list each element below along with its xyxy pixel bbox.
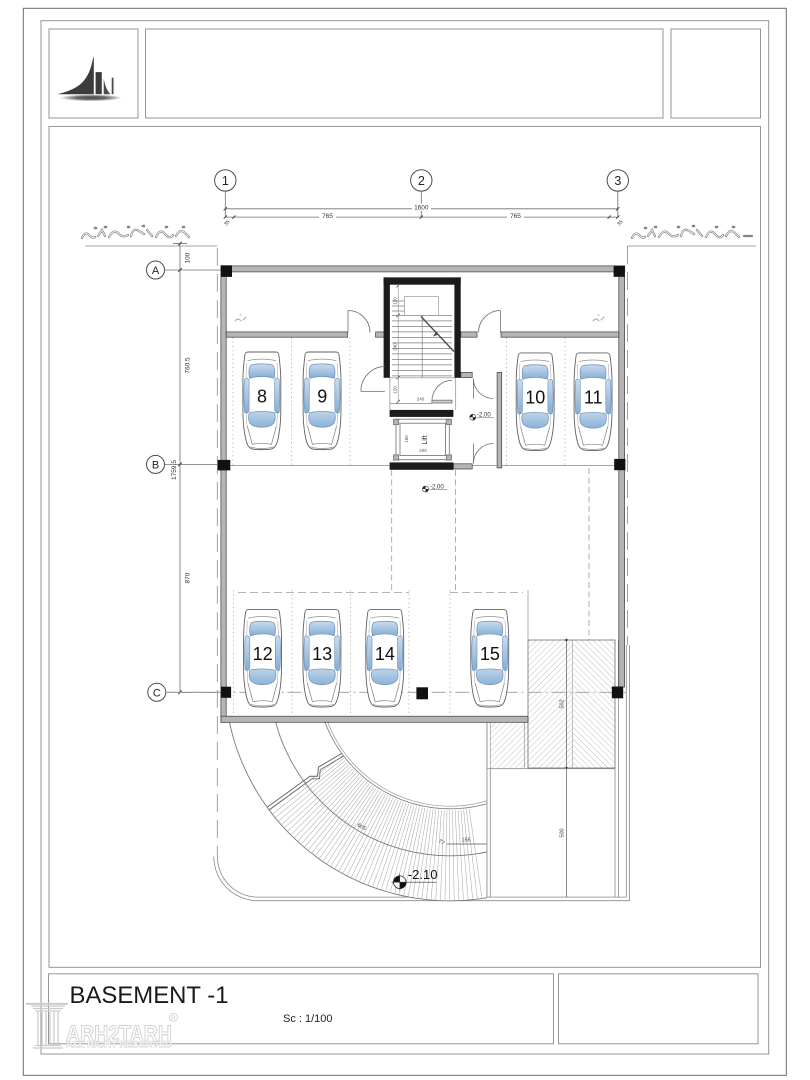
svg-text:15: 15 (480, 644, 500, 664)
svg-text:240: 240 (417, 397, 425, 402)
svg-text:BASEMENT -1: BASEMENT -1 (70, 982, 229, 1009)
svg-text:14: 14 (375, 644, 395, 664)
svg-text:13: 13 (312, 644, 332, 664)
svg-text:2: 2 (418, 174, 425, 188)
svg-text:1600: 1600 (414, 205, 429, 212)
svg-text:200: 200 (419, 448, 427, 453)
svg-text:11: 11 (584, 388, 603, 408)
svg-text:240: 240 (393, 343, 398, 351)
svg-text:9: 9 (317, 387, 327, 407)
svg-text:3: 3 (614, 174, 621, 188)
svg-text:502: 502 (560, 699, 566, 708)
svg-text:1: 1 (222, 174, 229, 188)
svg-text:12: 12 (253, 644, 273, 664)
svg-text:R: R (171, 1015, 176, 1022)
svg-text:Lift: Lift (422, 435, 429, 444)
svg-text:120: 120 (393, 386, 398, 394)
svg-text:156: 156 (461, 838, 470, 844)
svg-text:1759.5: 1759.5 (171, 460, 178, 480)
svg-text:120: 120 (393, 297, 398, 305)
svg-text:8: 8 (257, 387, 267, 407)
svg-text:B: B (152, 459, 159, 471)
svg-text:760.5: 760.5 (185, 357, 192, 374)
svg-text:Sc : 1/100: Sc : 1/100 (283, 1013, 333, 1025)
svg-text:C: C (153, 687, 161, 699)
svg-text:765: 765 (322, 213, 333, 220)
svg-text:100: 100 (185, 252, 192, 263)
svg-text:160: 160 (404, 435, 409, 443)
svg-text:10: 10 (525, 388, 545, 408)
svg-text:ALL RIGHT RESERVED: ALL RIGHT RESERVED (66, 1040, 173, 1050)
svg-text:500: 500 (560, 828, 566, 837)
svg-text:-2.10: -2.10 (408, 867, 438, 882)
svg-text:A: A (152, 265, 160, 277)
svg-text:765: 765 (510, 213, 521, 220)
svg-text:870: 870 (185, 572, 192, 583)
